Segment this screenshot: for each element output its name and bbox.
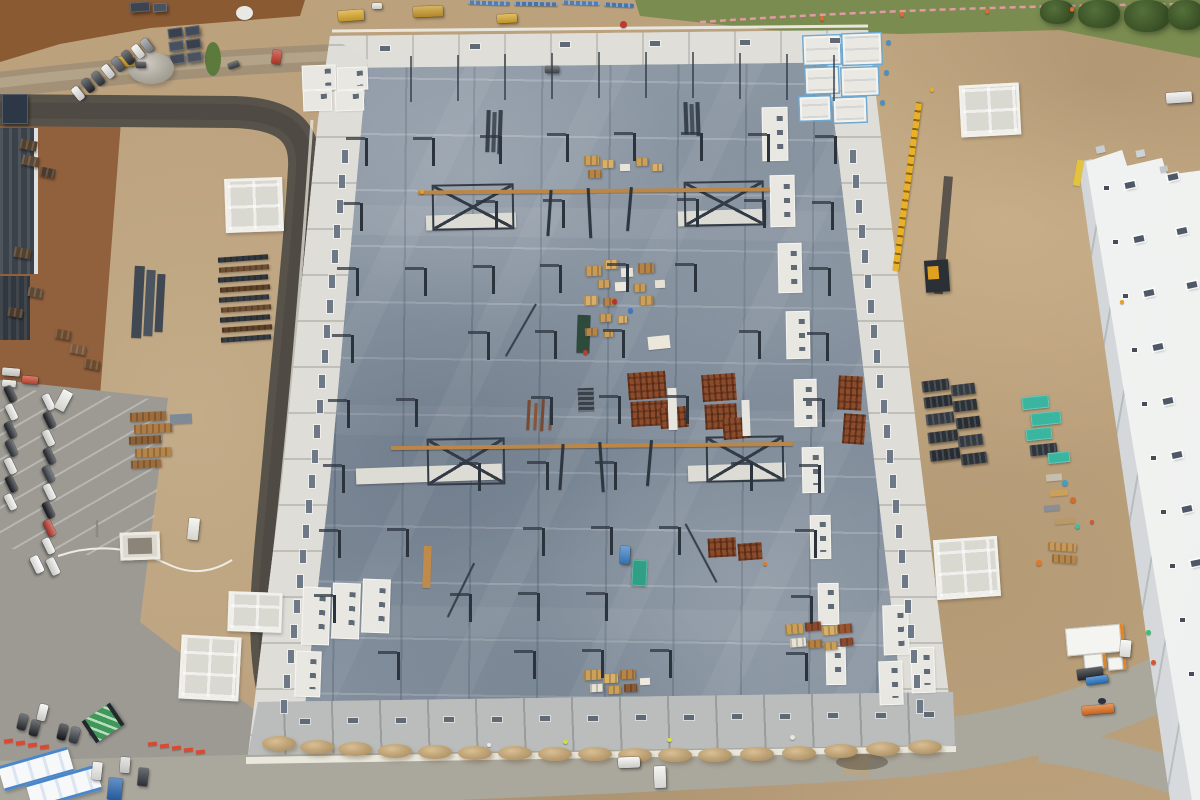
blue-trim-casting-pad [842, 67, 879, 95]
parked-car [45, 556, 61, 576]
rebar-mat [701, 373, 737, 402]
marker-dot [236, 6, 253, 20]
dirt-pile [824, 744, 858, 758]
lumber-stack [597, 280, 609, 289]
marker-dot [900, 12, 904, 17]
roof-vent [1170, 564, 1175, 568]
panel-form-opening [850, 150, 856, 163]
skylight [1186, 281, 1197, 289]
pallet-stack [955, 416, 980, 430]
lumber-stack [130, 411, 166, 422]
material-bar [540, 399, 545, 431]
marker-dot [880, 100, 885, 105]
lumber-stack [129, 435, 161, 445]
panel-form-opening [297, 575, 303, 588]
teal-wrapped-stack [1025, 427, 1052, 442]
roof-vent [1132, 348, 1137, 352]
material-bar [485, 110, 490, 152]
pallet-stack [21, 154, 40, 167]
steel-column [696, 199, 699, 227]
vehicle [338, 9, 365, 22]
panel-form-opening [893, 500, 899, 513]
steel-column [432, 138, 435, 166]
marker-dot [1036, 560, 1042, 566]
panel-form-opening [317, 400, 323, 413]
lumber-stack [808, 639, 823, 648]
steel-column [338, 530, 341, 558]
steel-brace-line [457, 55, 459, 101]
lumber-stack [633, 284, 645, 293]
lumber-stack [584, 156, 599, 166]
steel-column [831, 202, 834, 230]
dirt-pile [578, 747, 612, 761]
panel-form-opening [284, 675, 290, 688]
parked-car [3, 457, 18, 476]
material-bar [683, 102, 688, 134]
panel-form [362, 580, 390, 633]
parked-car [56, 723, 69, 741]
steel-column [397, 652, 400, 680]
dirt-pile [378, 744, 412, 758]
marker-dot [1120, 300, 1124, 304]
truck [1119, 640, 1131, 658]
panel-form-opening [877, 375, 883, 388]
site-objects-layer [0, 0, 1200, 800]
lumber-stack [838, 623, 853, 633]
vehicle [271, 49, 282, 64]
parked-car [42, 519, 57, 538]
marker-dot [420, 190, 424, 194]
lumber-stack [639, 296, 653, 306]
steel-column [550, 397, 553, 425]
panel-door-slot [732, 714, 742, 719]
steel-column [351, 335, 354, 363]
panel-door-slot [740, 40, 750, 45]
truck [654, 766, 667, 788]
vehicle [107, 777, 123, 800]
panel-form-opening [339, 175, 345, 188]
panel-form-opening [865, 275, 871, 288]
panel-form-opening [312, 450, 318, 463]
parked-car [41, 501, 56, 520]
steel-brace-line [786, 54, 788, 100]
panel-form-opening [314, 425, 320, 438]
parked-car [3, 421, 18, 440]
container [186, 51, 202, 63]
panel-door-slot [560, 42, 570, 47]
material-bar [640, 678, 650, 686]
pipe-bundle [562, 0, 600, 5]
steel-grate [578, 388, 595, 413]
container [130, 1, 151, 12]
vehicle [413, 5, 443, 17]
steel-column [610, 527, 613, 555]
steel-column [826, 333, 829, 361]
panel-form [336, 91, 364, 111]
lumber-stack [620, 670, 635, 680]
steel-column [601, 650, 604, 678]
washout-pad [120, 531, 161, 560]
parked-car [42, 483, 57, 502]
steel-column [758, 331, 761, 359]
steel-column [478, 463, 481, 491]
steel-column [750, 463, 753, 491]
parked-car [68, 726, 81, 744]
rebar-mat [842, 413, 866, 444]
pipe-bundle [468, 0, 510, 5]
panel-form [819, 584, 839, 624]
material-bar [655, 280, 665, 289]
material-bar [422, 546, 431, 588]
roof-vent [1104, 186, 1109, 190]
lumber-stack [1052, 554, 1076, 564]
casting-pad [933, 536, 1001, 600]
panel-door-slot [588, 716, 598, 721]
lumber-stack [651, 164, 662, 171]
dirt-pile [740, 747, 774, 761]
panel-door-slot [830, 38, 840, 43]
teal-wrapped-stack [631, 560, 647, 587]
panel-form [779, 244, 802, 292]
casting-pad [227, 591, 282, 633]
truck [1166, 91, 1193, 104]
blue-trim-casting-pad [842, 33, 881, 64]
panel-form-opening [884, 425, 890, 438]
marker-dot [1151, 660, 1156, 665]
ground-patch [205, 42, 221, 76]
pallet-stack [19, 138, 38, 151]
panel-form-opening [334, 225, 340, 238]
panel-door-slot [396, 718, 406, 723]
steel-column [356, 268, 359, 296]
dirt-pile [498, 746, 532, 760]
steel-column [492, 266, 495, 294]
panel-form-opening [908, 625, 914, 638]
steel-column [487, 332, 490, 360]
parked-car [41, 429, 56, 448]
vehicle [227, 60, 239, 69]
panel-form-opening [306, 500, 312, 513]
lumber-stack [785, 623, 804, 635]
vehicle [497, 13, 517, 23]
steel-column [605, 593, 608, 621]
roof-vent [1161, 510, 1166, 514]
panel-door-slot [924, 712, 934, 717]
vehicle [2, 367, 21, 377]
panel-form-opening [896, 525, 902, 538]
skylight [1171, 451, 1182, 459]
pallet-stack [929, 447, 960, 462]
truck [91, 762, 103, 781]
steel-brace-line [504, 54, 506, 100]
lumber-stack [221, 304, 271, 312]
panel-form [771, 176, 795, 226]
parked-car [41, 537, 56, 556]
roof-vent [1189, 672, 1194, 676]
lumber-stack [624, 684, 637, 693]
parked-car [42, 411, 57, 430]
panel-form-opening [329, 275, 335, 288]
casting-pad [178, 634, 241, 701]
steel-column [469, 594, 472, 622]
roof-vent [1151, 456, 1156, 460]
dirt-pile [538, 747, 572, 761]
panel-form-opening [294, 600, 300, 613]
parked-car [16, 713, 29, 731]
vehicle [620, 546, 631, 564]
crane-boom [892, 102, 922, 271]
dirt-pile [418, 745, 452, 759]
vehicle [22, 375, 39, 384]
marker-dot [1075, 524, 1080, 529]
marker-dot [820, 16, 824, 21]
pallet-stack [957, 434, 983, 448]
marker-dot [930, 88, 934, 92]
lumber-stack [617, 316, 627, 324]
lumber-stack [218, 254, 268, 262]
panel-form-opening [332, 250, 338, 263]
rebar-mat [708, 537, 737, 557]
panel-door-slot [444, 717, 454, 722]
rebar-mat [837, 375, 863, 410]
marker-dot [667, 738, 672, 742]
panel-form-opening [874, 350, 880, 363]
material-bar [184, 748, 193, 753]
lumber-stack [219, 294, 269, 302]
steel-column [546, 462, 549, 490]
panel-form [795, 380, 817, 426]
material-bar [620, 164, 630, 171]
material-bar [170, 413, 192, 424]
lumber-stack [824, 641, 838, 650]
pallet-stack [927, 429, 958, 444]
vehicle [372, 3, 382, 9]
marker-dot [884, 70, 889, 75]
panel-door-slot [380, 46, 390, 51]
skylight [1143, 289, 1154, 297]
vehicle [54, 389, 74, 413]
material-bar [154, 274, 165, 332]
material-bar [196, 750, 205, 755]
marker-dot [1062, 480, 1068, 486]
dirt-pile [908, 740, 942, 754]
marker-dot [763, 562, 767, 566]
blue-trim-casting-pad [800, 96, 831, 120]
material-bar [1046, 473, 1063, 481]
pipe-bundle [604, 2, 634, 8]
skylight [1167, 173, 1178, 181]
parked-car [29, 554, 45, 574]
material-bar [160, 744, 169, 749]
material-bar [533, 403, 537, 430]
steel-column [365, 138, 368, 166]
lumber-stack [218, 274, 268, 282]
pallet-stack [39, 167, 56, 179]
panel-form-opening [319, 375, 325, 388]
panel-form-opening [905, 600, 911, 613]
marker-dot [886, 40, 891, 45]
steel-column [810, 596, 813, 624]
parked-car [4, 403, 19, 422]
panel-form-opening [881, 400, 887, 413]
panel-form-opening [324, 325, 330, 338]
material-bar [491, 112, 496, 152]
dirt-pile [338, 742, 372, 756]
lumber-stack [638, 263, 655, 274]
steel-column [763, 200, 766, 228]
steel-column [700, 133, 703, 161]
panel-form [332, 584, 360, 639]
steel-column [360, 203, 363, 231]
panel-form-opening [300, 550, 306, 563]
gravel-pile [128, 52, 174, 84]
panel-door-slot [684, 715, 694, 720]
pallet-stack [960, 451, 987, 465]
material-bar [40, 744, 49, 749]
lumber-stack [134, 423, 172, 434]
material-bar [558, 444, 564, 490]
lumber-stack [635, 158, 648, 166]
steel-column [614, 462, 617, 490]
lumber-stack [584, 670, 602, 681]
pallet-stack [925, 411, 954, 425]
panel-form-opening [887, 450, 893, 463]
material-bar [587, 188, 593, 238]
lumber-stack [607, 686, 621, 695]
roof-vent [1180, 618, 1185, 622]
roof-vent [1142, 402, 1147, 406]
steel-column [834, 136, 837, 164]
lumber-stack [135, 447, 171, 458]
panel-form-opening [291, 625, 297, 638]
parked-car [3, 493, 18, 512]
material-bar [526, 400, 531, 430]
panel-door-slot [828, 713, 838, 718]
skylight [1124, 181, 1135, 189]
panel-form-opening [862, 250, 868, 263]
panel-form-opening [859, 225, 865, 238]
steel-column [805, 653, 808, 681]
teal-wrapped-stack [1030, 410, 1061, 426]
vehicle [1086, 675, 1109, 686]
dirt-pile [300, 740, 334, 754]
parked-car [42, 447, 57, 466]
panel-form-opening [914, 675, 920, 688]
lumber-stack [790, 637, 807, 647]
steel-column [678, 527, 681, 555]
pallet-stack [923, 394, 952, 408]
tree [1124, 0, 1170, 32]
panel-form-opening [871, 325, 877, 338]
panel-form [303, 65, 336, 89]
panel-form-opening [868, 300, 874, 313]
skylight [1190, 559, 1200, 567]
material-bar [1095, 145, 1105, 154]
dirt-pile [866, 742, 900, 756]
steel-column [669, 650, 672, 678]
material-bar [4, 738, 13, 743]
marker-dot [628, 308, 633, 313]
steel-brace-line [645, 52, 647, 98]
panel-form-opening [899, 550, 905, 563]
lumber-stack [584, 296, 598, 306]
panel-form-opening [856, 200, 862, 213]
steel-column [633, 133, 636, 161]
lumber-stack [599, 314, 611, 323]
steel-column [342, 465, 345, 493]
marker-dot [1070, 7, 1074, 12]
lumber-stack [840, 637, 854, 646]
teal-wrapped-stack [1021, 395, 1049, 411]
truck [119, 757, 130, 774]
tree [1168, 0, 1200, 30]
casting-pad [224, 177, 284, 233]
steel-column [618, 396, 621, 424]
panel-door-slot [492, 717, 502, 722]
panel-form-opening [309, 475, 315, 488]
material-bar [546, 190, 552, 236]
lumber-stack [588, 170, 601, 178]
dirt-pile [782, 746, 816, 760]
container [184, 25, 200, 37]
roof-vent [1123, 294, 1128, 298]
container [185, 38, 201, 50]
office-trailer [1107, 656, 1126, 671]
material-bar [148, 742, 157, 747]
lumber-stack [220, 284, 270, 292]
panel-form-opening [281, 700, 287, 713]
vehicle [136, 62, 146, 68]
lumber-stack [219, 264, 269, 272]
lumber-stack [601, 160, 614, 168]
lumber-stack [822, 625, 838, 635]
lumber-stack [585, 266, 602, 277]
panel-form-opening [337, 200, 343, 213]
material-bar [1159, 165, 1168, 173]
material-bar [695, 102, 700, 136]
parked-car [4, 475, 19, 494]
steel-column [822, 399, 825, 427]
parked-car [41, 465, 56, 484]
parked-car [41, 393, 56, 412]
dirt-pile [458, 746, 492, 760]
panel-form [295, 652, 321, 697]
marker-dot [1146, 630, 1151, 635]
marker-dot [563, 740, 568, 744]
panel-form-opening [327, 300, 333, 313]
marker-dot [583, 350, 588, 355]
dirt-pile [262, 736, 296, 751]
parked-car [618, 757, 640, 769]
steel-column [686, 396, 689, 424]
pallet-stack [950, 383, 975, 397]
lumber-stack [222, 324, 272, 332]
panel-form [787, 312, 810, 358]
steel-column [559, 265, 562, 293]
lumber-stack [603, 674, 618, 684]
panel-door-slot [540, 716, 550, 721]
parked-car [70, 85, 86, 102]
steel-column [767, 134, 770, 162]
lumber-stack [220, 314, 270, 322]
pallet-stack [13, 247, 31, 260]
teal-wrapped-stack [1047, 451, 1070, 464]
steel-column [533, 651, 536, 679]
panel-form-opening [917, 700, 923, 713]
steel-brace-line [692, 52, 694, 98]
steel-column [495, 201, 498, 229]
skylight [1176, 227, 1187, 235]
